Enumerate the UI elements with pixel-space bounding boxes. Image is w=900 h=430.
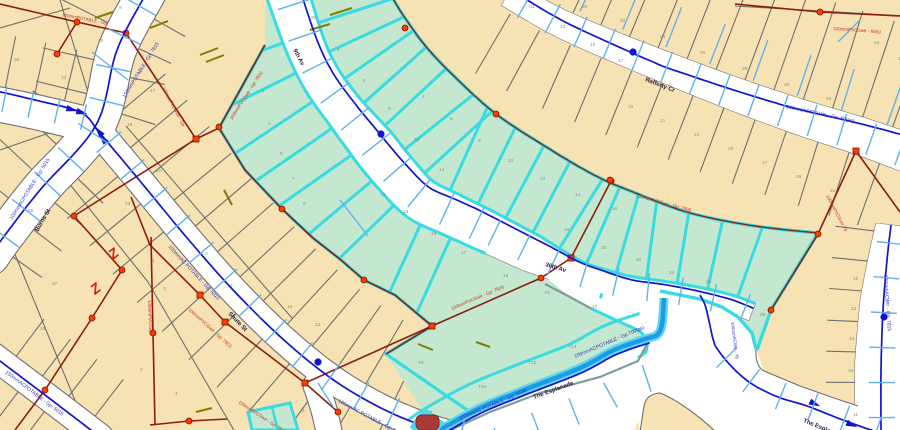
svg-text:32: 32 xyxy=(826,96,832,102)
svg-text:32: 32 xyxy=(61,75,67,81)
svg-text:11: 11 xyxy=(300,408,305,414)
svg-text:10: 10 xyxy=(508,158,514,164)
svg-text:30: 30 xyxy=(14,57,20,63)
svg-text:22: 22 xyxy=(636,257,642,263)
svg-text:6: 6 xyxy=(450,116,453,122)
svg-text:T12: T12 xyxy=(528,360,537,366)
svg-text:16: 16 xyxy=(612,206,618,212)
svg-text:10: 10 xyxy=(414,137,420,143)
svg-text:18: 18 xyxy=(564,227,570,233)
svg-text:1: 1 xyxy=(152,258,155,264)
svg-text:17: 17 xyxy=(461,250,467,256)
svg-text:27: 27 xyxy=(52,281,58,287)
svg-text:28: 28 xyxy=(742,66,748,72)
svg-text:12: 12 xyxy=(315,322,321,328)
svg-text:15: 15 xyxy=(590,42,596,48)
svg-text:29: 29 xyxy=(796,174,802,180)
svg-text:4: 4 xyxy=(337,47,340,53)
svg-text:27: 27 xyxy=(762,160,768,166)
svg-text:4: 4 xyxy=(175,391,178,397)
svg-text:23: 23 xyxy=(592,304,598,310)
svg-text:7: 7 xyxy=(292,176,295,182)
svg-text:1: 1 xyxy=(262,88,265,94)
svg-text:25: 25 xyxy=(28,208,34,214)
svg-text:11: 11 xyxy=(530,4,535,10)
svg-text:5: 5 xyxy=(280,151,283,157)
svg-text:10: 10 xyxy=(98,38,104,44)
svg-text:16: 16 xyxy=(848,368,854,374)
svg-text:2: 2 xyxy=(140,367,143,373)
svg-text:23: 23 xyxy=(694,132,700,138)
svg-text:14: 14 xyxy=(849,336,855,342)
svg-text:19: 19 xyxy=(503,273,509,279)
svg-text:17: 17 xyxy=(150,88,156,94)
svg-text:T8: T8 xyxy=(418,360,424,366)
svg-text:20: 20 xyxy=(311,15,317,21)
svg-text:9: 9 xyxy=(303,201,306,207)
svg-text:8: 8 xyxy=(478,138,481,144)
svg-text:20: 20 xyxy=(582,4,588,10)
svg-text:14: 14 xyxy=(575,192,581,198)
svg-text:9: 9 xyxy=(119,5,122,11)
svg-text:10: 10 xyxy=(287,304,293,310)
svg-text:24: 24 xyxy=(660,34,666,40)
svg-text:10: 10 xyxy=(853,276,859,282)
svg-text:16: 16 xyxy=(874,40,880,46)
svg-text:19: 19 xyxy=(127,122,133,128)
svg-text:21: 21 xyxy=(660,118,666,124)
svg-text:6: 6 xyxy=(363,78,366,84)
svg-text:12: 12 xyxy=(851,306,857,312)
svg-text:22: 22 xyxy=(620,18,626,24)
svg-text:12: 12 xyxy=(540,176,546,182)
svg-text:29: 29 xyxy=(40,326,46,332)
svg-text:T14: T14 xyxy=(568,344,577,350)
svg-text:30: 30 xyxy=(784,82,790,88)
svg-text:11: 11 xyxy=(381,192,386,198)
svg-text:3: 3 xyxy=(268,121,271,127)
svg-text:3: 3 xyxy=(163,286,166,292)
svg-text:4: 4 xyxy=(230,283,233,289)
svg-text:19: 19 xyxy=(628,104,634,110)
svg-text:20: 20 xyxy=(601,245,607,251)
svg-text:26: 26 xyxy=(700,50,706,56)
svg-text:21: 21 xyxy=(545,290,551,296)
svg-text:6: 6 xyxy=(258,314,261,320)
svg-text:23: 23 xyxy=(125,201,131,207)
svg-text:24: 24 xyxy=(669,270,675,276)
svg-text:13: 13 xyxy=(403,209,409,215)
svg-text:31: 31 xyxy=(830,188,836,194)
svg-text:2: 2 xyxy=(205,251,208,257)
svg-text:11: 11 xyxy=(853,412,858,418)
svg-text:13: 13 xyxy=(560,24,566,30)
svg-text:8: 8 xyxy=(388,106,391,112)
svg-text:25: 25 xyxy=(728,146,734,152)
svg-text:2A: 2A xyxy=(156,168,163,174)
svg-text:12: 12 xyxy=(439,167,445,173)
svg-text:4: 4 xyxy=(422,94,425,100)
svg-text:17: 17 xyxy=(618,58,624,64)
svg-text:28: 28 xyxy=(760,312,766,318)
svg-text:15: 15 xyxy=(431,231,437,237)
svg-text:26: 26 xyxy=(706,279,712,285)
svg-text:T10: T10 xyxy=(478,384,487,390)
